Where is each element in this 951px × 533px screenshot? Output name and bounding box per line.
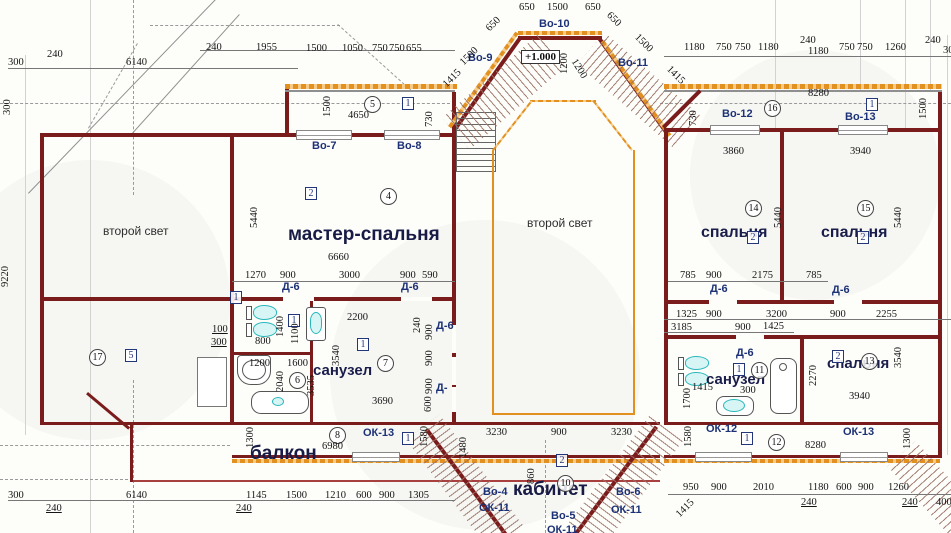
room-label-office: кабинет — [513, 479, 588, 501]
dim-label: 4650 — [348, 110, 369, 121]
dim-label: 3230 — [486, 427, 507, 438]
dim-label: 240 — [206, 42, 222, 53]
dim-label: 2010 — [753, 482, 774, 493]
dim-label: 600 — [836, 482, 852, 493]
insulated-wall — [285, 84, 457, 89]
dim-label: 900 — [830, 309, 846, 320]
dim-label: 750 — [716, 42, 732, 53]
dim-label: 900 — [706, 309, 722, 320]
door-label-d6: Д-6 — [282, 281, 300, 293]
dim-label: 3230 — [611, 427, 632, 438]
dim-label: 900 — [551, 427, 567, 438]
dim-label: 1210 — [325, 490, 346, 501]
dim-label: 1305 — [408, 490, 429, 501]
room-label-bathroom: санузел — [313, 362, 372, 379]
dim-label: 750 — [372, 43, 388, 54]
dim-label: 1500 — [286, 490, 307, 501]
room-marker-circle-6: 6 — [289, 372, 306, 389]
second-light-outline-top — [530, 100, 596, 102]
dim-label: 1500 — [918, 98, 929, 119]
window-symbol — [352, 452, 400, 462]
window-label-ok13: ОК-13 — [363, 427, 394, 439]
room-marker-circle-11: 11 — [751, 362, 768, 379]
dim-label: 600 — [356, 490, 372, 501]
window-symbol — [384, 130, 440, 140]
marker-box-2: 2 — [556, 454, 568, 467]
dim-label: 3860 — [723, 146, 744, 157]
dim-label: 240 — [236, 503, 252, 514]
window-label-vo10: Во-10 — [539, 18, 570, 30]
roof-dashed-line — [0, 103, 455, 104]
window-symbol — [710, 125, 760, 135]
window-label-ok12: ОК-12 — [706, 423, 737, 435]
dim-label: 900 — [706, 270, 722, 281]
dim-label: 300 — [2, 99, 13, 115]
dim-label: 800 — [255, 336, 271, 347]
window-label-ok11: ОК-11 — [547, 524, 578, 533]
dim-label: 240 — [925, 35, 941, 46]
dim-label: 785 — [806, 270, 822, 281]
dim-label: 6140 — [126, 490, 147, 501]
window-label-vo8: Во-8 — [397, 140, 421, 152]
marker-box-1: 1 — [357, 338, 369, 351]
dim-label: 650 — [604, 10, 623, 29]
dim-label: 730 — [688, 110, 699, 126]
roof-dashed-line — [150, 25, 340, 26]
dim-label: 750 — [735, 42, 751, 53]
dim-label: 3690 — [372, 396, 393, 407]
dim-label: 750 — [857, 42, 873, 53]
dim-label: 900 — [280, 270, 296, 281]
dim-label: 240 — [412, 317, 423, 333]
door-label-d6: Д-6 — [436, 320, 454, 332]
dimension-line — [8, 68, 298, 69]
marker-box-1: 1 — [741, 432, 753, 445]
dim-label: 1325 — [676, 309, 697, 320]
window-label-vo12: Во-12 — [722, 108, 753, 120]
room-label-second-light: второй свет — [527, 216, 593, 230]
floor-plan-canvas: второй свет второй свет мастер-спальня с… — [0, 0, 951, 533]
dim-label: 1100 — [290, 323, 301, 344]
terrace-dashed-line — [0, 479, 128, 480]
door-opening — [401, 297, 432, 301]
wall-segment — [40, 297, 455, 301]
wall-segment — [130, 422, 133, 482]
window-label-vo4: Во-4 — [483, 486, 507, 498]
roof-edge-line — [132, 14, 240, 134]
dim-label: 900 — [379, 490, 395, 501]
dim-label: 1955 — [256, 42, 277, 53]
window-label-vo7: Во-7 — [312, 140, 336, 152]
axis-dashed-line — [133, 380, 134, 533]
dim-label: 3940 — [849, 391, 870, 402]
axis-line — [90, 0, 91, 533]
room-marker-circle-14: 14 — [745, 200, 762, 217]
dim-label: 300 — [740, 385, 756, 396]
window-label-ok11: ОК-11 — [479, 502, 510, 514]
dim-label: 1050 — [342, 43, 363, 54]
marker-box-2: 2 — [747, 231, 759, 244]
dim-label: 900 — [424, 378, 435, 394]
dim-label: 3200 — [766, 309, 787, 320]
door-opening — [834, 300, 862, 304]
window-symbol — [840, 452, 888, 462]
bathtub-drain-icon — [779, 363, 787, 371]
dim-label: 1200 — [249, 358, 270, 369]
wall-segment — [40, 422, 660, 425]
door-label-d6: Д- — [436, 382, 448, 394]
dim-label: 1480 — [458, 437, 469, 458]
dim-label: 750 — [839, 42, 855, 53]
wall-line — [285, 90, 455, 92]
marker-box-1: 1 — [402, 97, 414, 110]
dim-label: 900 — [735, 322, 751, 333]
toilet-icon — [253, 322, 277, 337]
dim-label: 1500 — [322, 96, 333, 117]
toilet-icon — [678, 373, 684, 386]
dim-label: 100 — [212, 324, 228, 335]
dim-label: 3535 — [306, 375, 317, 396]
dim-label: 8280 — [805, 440, 826, 451]
door-label-d6: Д-6 — [832, 284, 850, 296]
window-label-ok13: ОК-13 — [843, 426, 874, 438]
dim-label: 1260 — [885, 42, 906, 53]
dim-label: 3000 — [339, 270, 360, 281]
dim-label: 1400 — [275, 316, 286, 337]
room-marker-circle-15: 15 — [857, 200, 874, 217]
dim-label: 650 — [585, 2, 601, 13]
room-marker-circle-7: 7 — [377, 355, 394, 372]
dim-label: 240 — [46, 503, 62, 514]
dim-label: 1270 — [245, 270, 266, 281]
dim-label: 300 — [8, 57, 24, 68]
dim-label: 650 — [484, 15, 503, 34]
dim-label: 950 — [683, 482, 699, 493]
room-label-master-bedroom: мастер-спальня — [288, 224, 440, 246]
dimension-line — [668, 281, 828, 282]
window-label-vo13: Во-13 — [845, 111, 876, 123]
dim-label: 400 — [936, 497, 951, 508]
wall-line — [664, 90, 942, 92]
dim-label: 1580 — [683, 426, 694, 447]
marker-box-2: 2 — [857, 231, 869, 244]
window-label-ok11: ОК-11 — [611, 504, 642, 516]
window-symbol — [695, 452, 752, 462]
dim-label: 900 — [400, 270, 416, 281]
door-opening — [452, 387, 456, 412]
terrace-dashed-line — [0, 445, 230, 446]
toilet-icon — [685, 356, 709, 370]
dim-label: 750 — [389, 43, 405, 54]
toilet-icon — [678, 357, 684, 370]
marker-box-2: 2 — [305, 187, 317, 200]
bathtub-drain-icon — [272, 397, 284, 406]
dim-label: 1415 — [692, 382, 713, 393]
dim-label: 590 — [422, 270, 438, 281]
dimension-line — [232, 281, 455, 282]
room-marker-circle-17: 17 — [89, 349, 106, 366]
dim-label: 8280 — [808, 88, 829, 99]
marker-box-1: 1 — [230, 291, 242, 304]
pedestal-sink-icon — [310, 312, 322, 334]
dim-label: 1600 — [287, 358, 308, 369]
wall-segment — [230, 133, 234, 425]
door-label-d6: Д-6 — [736, 347, 754, 359]
dim-label: 1145 — [246, 490, 267, 501]
dim-label: 2270 — [808, 365, 819, 386]
dim-label: 1180 — [808, 482, 829, 493]
window-label-vo6: Во-6 — [616, 486, 640, 498]
wall-segment — [800, 335, 804, 425]
dim-label: 6140 — [126, 57, 147, 68]
dim-label: 6660 — [328, 252, 349, 263]
dim-label: 655 — [406, 43, 422, 54]
dim-label: 240 — [47, 49, 63, 60]
marker-box-1: 1 — [402, 432, 414, 445]
dim-label: 860 — [526, 468, 537, 484]
axis-dashed-line — [133, 0, 134, 195]
room-label-bedroom: спальня — [821, 224, 887, 242]
door-opening — [452, 357, 456, 385]
dim-label: 1180 — [758, 42, 779, 53]
room-label-second-light: второй свет — [103, 224, 169, 238]
furniture-icon — [197, 357, 227, 407]
insulated-wall — [664, 84, 942, 89]
roof-dashed-line — [660, 103, 951, 104]
window-label-vo11: Во-11 — [618, 57, 648, 69]
dim-label: 5440 — [893, 207, 904, 228]
dim-label: 6980 — [322, 441, 343, 452]
wall-segment — [664, 300, 942, 304]
dim-label: 2200 — [347, 312, 368, 323]
dim-label: 730 — [424, 111, 435, 127]
room-marker-circle-13: 13 — [861, 353, 878, 370]
window-label-vo5: Во-5 — [551, 510, 575, 522]
dim-label: 240 — [801, 497, 817, 508]
dim-label: 300 — [211, 337, 227, 348]
dim-label: 3940 — [850, 146, 871, 157]
dimension-line — [668, 494, 951, 495]
washbasin-icon — [723, 399, 745, 412]
door-opening — [283, 297, 314, 301]
dim-label: 1180 — [808, 46, 829, 57]
dim-label: 3185 — [671, 322, 692, 333]
dim-label: 1300 — [245, 427, 256, 448]
door-label-d6: Д-6 — [401, 281, 419, 293]
dim-label: 240 — [902, 497, 918, 508]
door-label-d6: Д-6 — [710, 283, 728, 295]
dim-label: 1415 — [674, 497, 697, 520]
axis-line — [905, 0, 906, 130]
wall-segment — [938, 92, 942, 455]
wall-segment — [40, 133, 44, 425]
dim-label: 240 — [800, 35, 816, 46]
roof-dashed-line — [337, 24, 412, 92]
door-opening — [709, 300, 737, 304]
dim-label: 3540 — [893, 347, 904, 368]
toilet-icon — [253, 305, 277, 320]
dim-label: 900 — [424, 350, 435, 366]
dim-label: 900 — [858, 482, 874, 493]
dim-label: 900 — [424, 324, 435, 340]
dim-label: 1500 — [306, 43, 327, 54]
dim-label: 2040 — [275, 371, 286, 392]
dim-label: 1580 — [419, 426, 430, 447]
dim-label: 300 — [943, 45, 951, 56]
second-light-outline — [492, 150, 635, 415]
dim-label: 1180 — [684, 42, 705, 53]
dim-label: 5440 — [773, 207, 784, 228]
axis-line — [25, 55, 26, 435]
dim-label: 2175 — [752, 270, 773, 281]
marker-box-1: 1 — [866, 98, 878, 111]
marker-box-5: 5 — [125, 349, 137, 362]
room-label-balcony: балкон — [250, 443, 317, 465]
wall-segment — [664, 128, 942, 132]
dim-label: 2255 — [876, 309, 897, 320]
marker-box-2: 2 — [832, 350, 844, 363]
wall-segment — [285, 88, 289, 133]
dim-label: 1500 — [632, 32, 655, 55]
toilet-icon — [246, 323, 252, 337]
window-symbol — [296, 130, 352, 140]
room-marker-circle-16: 16 — [764, 100, 781, 117]
elevation-mark: +1.000 — [521, 50, 560, 64]
dim-label: 1500 — [547, 2, 568, 13]
insulated-wall — [518, 31, 602, 35]
wall-segment — [664, 128, 668, 425]
axis-line — [930, 0, 931, 92]
room-marker-circle-4: 4 — [380, 188, 397, 205]
dim-label: 1260 — [888, 482, 909, 493]
room-marker-circle-10: 10 — [557, 475, 574, 492]
dim-label: 5440 — [249, 207, 260, 228]
dim-label: 1425 — [763, 321, 784, 332]
axis-line — [947, 35, 948, 455]
dim-label: 3540 — [331, 345, 342, 366]
dim-label: 300 — [8, 490, 24, 501]
toilet-icon — [246, 306, 252, 320]
marker-box-1: 1 — [733, 363, 745, 376]
room-marker-circle-12: 12 — [768, 434, 785, 451]
window-symbol — [838, 125, 888, 135]
dim-label: 9220 — [0, 266, 11, 287]
door-opening — [736, 335, 764, 339]
dim-label: 900 — [711, 482, 727, 493]
dim-label: 650 — [519, 2, 535, 13]
dim-label: 785 — [680, 270, 696, 281]
dim-label: 1300 — [902, 428, 913, 449]
dim-label: 600 — [423, 396, 434, 412]
